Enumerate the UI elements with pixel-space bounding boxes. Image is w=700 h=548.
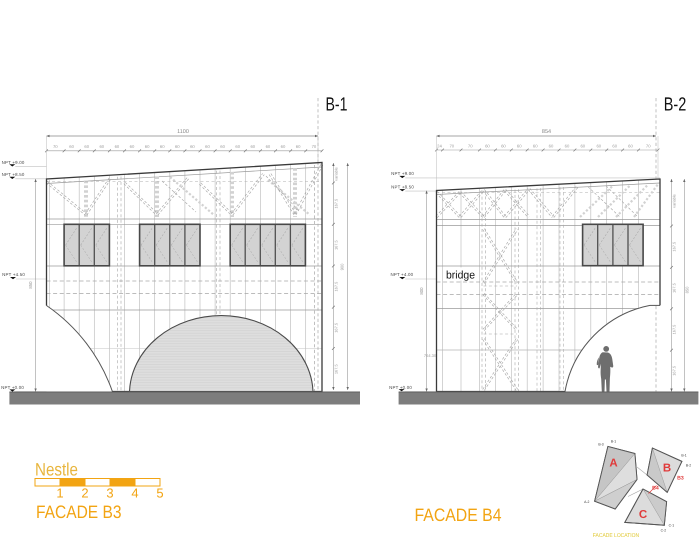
svg-text:167.5: 167.5 xyxy=(334,282,339,292)
svg-text:variable: variable xyxy=(672,194,677,208)
svg-text:167.5: 167.5 xyxy=(334,240,339,250)
svg-text:60: 60 xyxy=(533,143,538,148)
svg-text:FACADE B3: FACADE B3 xyxy=(36,502,122,522)
svg-text:NPT +4.00: NPT +4.00 xyxy=(390,272,413,277)
svg-text:B-2: B-2 xyxy=(686,463,691,467)
svg-text:B-3: B-3 xyxy=(598,442,603,446)
svg-text:167.5: 167.5 xyxy=(334,323,339,333)
svg-text:B3: B3 xyxy=(677,476,684,482)
svg-text:C-1: C-1 xyxy=(669,523,675,527)
svg-text:B-1: B-1 xyxy=(681,453,686,457)
svg-text:B-2: B-2 xyxy=(664,95,687,116)
svg-text:60: 60 xyxy=(501,143,506,148)
svg-text:60: 60 xyxy=(612,143,617,148)
svg-text:NPT +9.00: NPT +9.00 xyxy=(391,171,414,176)
svg-text:60: 60 xyxy=(565,143,570,148)
svg-text:60: 60 xyxy=(485,143,490,148)
svg-text:bridge: bridge xyxy=(446,270,475,282)
svg-text:800: 800 xyxy=(419,287,424,295)
svg-text:60: 60 xyxy=(115,144,120,149)
svg-text:C-2: C-2 xyxy=(661,529,667,533)
svg-text:60: 60 xyxy=(69,144,74,149)
svg-text:24: 24 xyxy=(437,143,442,148)
svg-text:2: 2 xyxy=(81,486,88,501)
svg-text:NPT +8.50: NPT +8.50 xyxy=(2,172,25,177)
svg-text:60: 60 xyxy=(99,144,104,149)
svg-text:60: 60 xyxy=(296,144,301,149)
svg-text:60: 60 xyxy=(266,144,271,149)
svg-text:70: 70 xyxy=(53,144,58,149)
svg-text:70: 70 xyxy=(646,143,651,148)
svg-text:167.5: 167.5 xyxy=(334,199,339,209)
svg-text:854: 854 xyxy=(542,129,551,135)
svg-text:850: 850 xyxy=(28,281,33,289)
svg-text:60: 60 xyxy=(205,144,210,149)
svg-text:60: 60 xyxy=(145,144,150,149)
svg-text:167.5: 167.5 xyxy=(672,366,677,376)
svg-text:167.5: 167.5 xyxy=(672,325,677,335)
svg-text:60: 60 xyxy=(175,144,180,149)
svg-text:60: 60 xyxy=(160,144,165,149)
svg-text:FACADE B4: FACADE B4 xyxy=(415,505,502,525)
svg-text:FACADE LOCATION: FACADE LOCATION xyxy=(593,533,639,539)
svg-text:60: 60 xyxy=(628,143,633,148)
svg-text:B-1: B-1 xyxy=(326,95,348,116)
svg-text:NPT +4.50: NPT +4.50 xyxy=(2,272,25,277)
svg-text:60: 60 xyxy=(130,144,135,149)
svg-text:Nestle: Nestle xyxy=(35,459,78,479)
svg-text:NPT +0.00: NPT +0.00 xyxy=(389,385,412,390)
svg-text:167.5: 167.5 xyxy=(334,364,339,374)
svg-text:B-1: B-1 xyxy=(611,440,616,444)
svg-text:60: 60 xyxy=(517,143,522,148)
svg-text:70: 70 xyxy=(449,143,454,148)
svg-text:167.5: 167.5 xyxy=(672,242,677,252)
svg-text:70: 70 xyxy=(312,144,317,149)
svg-text:A: A xyxy=(609,458,617,470)
svg-text:60: 60 xyxy=(549,143,554,148)
svg-text:167.5: 167.5 xyxy=(672,283,677,293)
svg-text:3: 3 xyxy=(106,486,113,501)
svg-text:60: 60 xyxy=(84,144,89,149)
svg-text:60: 60 xyxy=(596,143,601,148)
svg-text:70: 70 xyxy=(468,143,473,148)
svg-text:60: 60 xyxy=(190,144,195,149)
svg-text:4: 4 xyxy=(131,486,138,501)
svg-text:B: B xyxy=(663,463,671,475)
svg-text:60: 60 xyxy=(281,144,286,149)
svg-text:850: 850 xyxy=(685,286,690,294)
svg-text:900: 900 xyxy=(339,263,344,271)
svg-text:NPT +9.00: NPT +9.00 xyxy=(2,160,25,165)
svg-text:60: 60 xyxy=(580,143,585,148)
svg-text:1: 1 xyxy=(56,486,63,501)
svg-text:5: 5 xyxy=(156,486,163,501)
svg-text:60: 60 xyxy=(220,144,225,149)
svg-text:variable: variable xyxy=(334,167,339,181)
svg-text:C: C xyxy=(639,509,647,521)
svg-text:A-2: A-2 xyxy=(584,500,589,504)
svg-text:60: 60 xyxy=(250,144,255,149)
svg-text:60: 60 xyxy=(235,144,240,149)
svg-text:1100: 1100 xyxy=(177,129,189,135)
svg-text:NPT +8.50: NPT +8.50 xyxy=(391,184,414,189)
